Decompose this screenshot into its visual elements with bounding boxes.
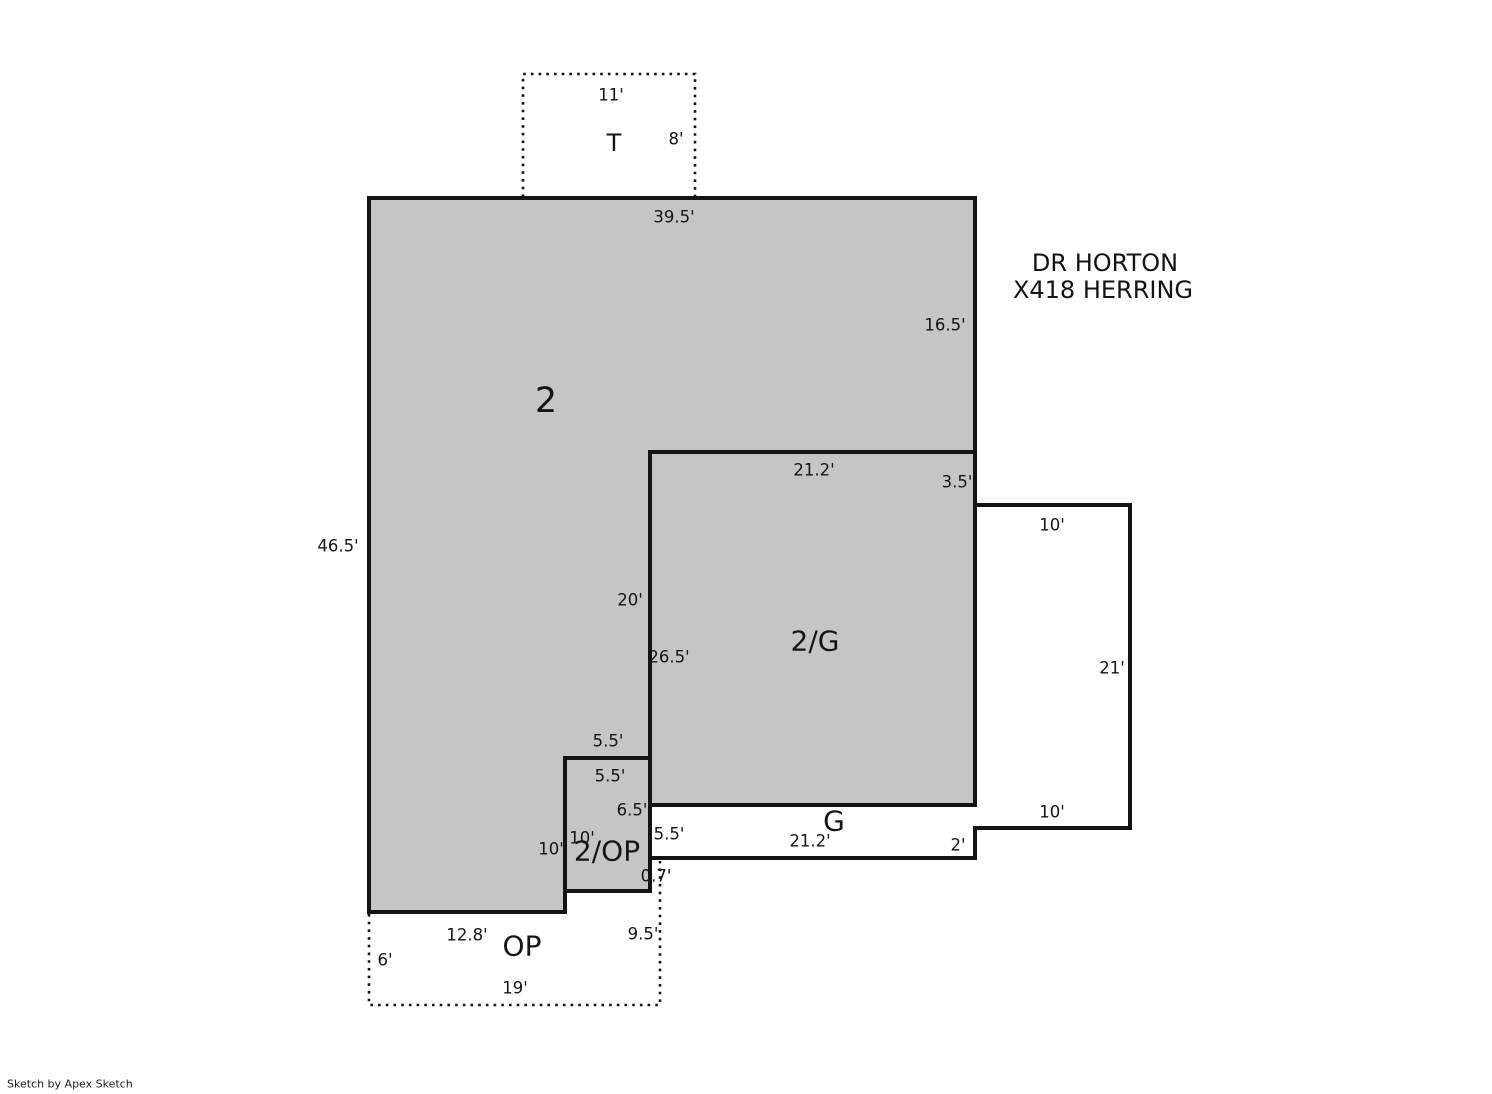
dim-label-terrace-right: 8' bbox=[668, 130, 683, 149]
plan-title-line1: DR HORTON bbox=[1032, 249, 1178, 277]
dim-label-op2-top: 5.5' bbox=[595, 767, 626, 786]
dim-label-garage-strip-left: 5.5' bbox=[654, 825, 685, 844]
dim-label-g2-top: 21.2' bbox=[793, 461, 834, 480]
dim-label-fl2-inner-vert: 20' bbox=[617, 591, 643, 610]
dim-label-op2-right: 6.5' bbox=[617, 801, 648, 820]
dim-label-garage-step: 2' bbox=[950, 836, 965, 855]
area-label-second-floor: 2 bbox=[535, 381, 557, 421]
sketch-canvas: T 2 2/G G 2/OP OP 11' 8' 39.5' 16.5' 46.… bbox=[0, 0, 1492, 1094]
dim-label-fl2-right: 16.5' bbox=[924, 316, 965, 335]
plan-title-line2: X418 HERRING bbox=[1013, 276, 1193, 304]
dim-label-op-gap: 0.7' bbox=[641, 867, 672, 886]
dim-label-terrace-top: 11' bbox=[598, 86, 624, 105]
dim-label-garage-right-upper: 3.5' bbox=[942, 473, 973, 492]
area-label-terrace: T bbox=[606, 129, 622, 157]
dim-label-garage-bottom: 21.2' bbox=[789, 832, 830, 851]
dim-label-op-left: 6' bbox=[377, 951, 392, 970]
area-label-open-porch: OP bbox=[503, 930, 542, 963]
dim-label-op2-left: 10' bbox=[569, 829, 595, 848]
dim-label-fl2-bottom: 12.8' bbox=[446, 926, 487, 945]
dim-label-garage-ext-right: 21' bbox=[1099, 659, 1125, 678]
dim-label-fl2-step-top: 5.5' bbox=[593, 732, 624, 751]
dim-label-op-right: 9.5' bbox=[628, 925, 659, 944]
credit-text: Sketch by Apex Sketch bbox=[7, 1078, 133, 1091]
dim-label-fl2-top: 39.5' bbox=[653, 208, 694, 227]
dim-label-fl2-left: 46.5' bbox=[317, 537, 358, 556]
area-label-second-over-garage: 2/G bbox=[791, 625, 840, 658]
dim-label-garage-ext-top: 10' bbox=[1039, 516, 1065, 535]
dim-label-garage-ext-bottom: 10' bbox=[1039, 803, 1065, 822]
dim-label-garage-left: 26.5' bbox=[648, 648, 689, 667]
dim-label-op-bottom: 19' bbox=[502, 979, 528, 998]
floorplan-sketch: T 2 2/G G 2/OP OP 11' 8' 39.5' 16.5' 46.… bbox=[0, 0, 1492, 1094]
dim-label-fl2-step-left: 10' bbox=[538, 840, 564, 859]
